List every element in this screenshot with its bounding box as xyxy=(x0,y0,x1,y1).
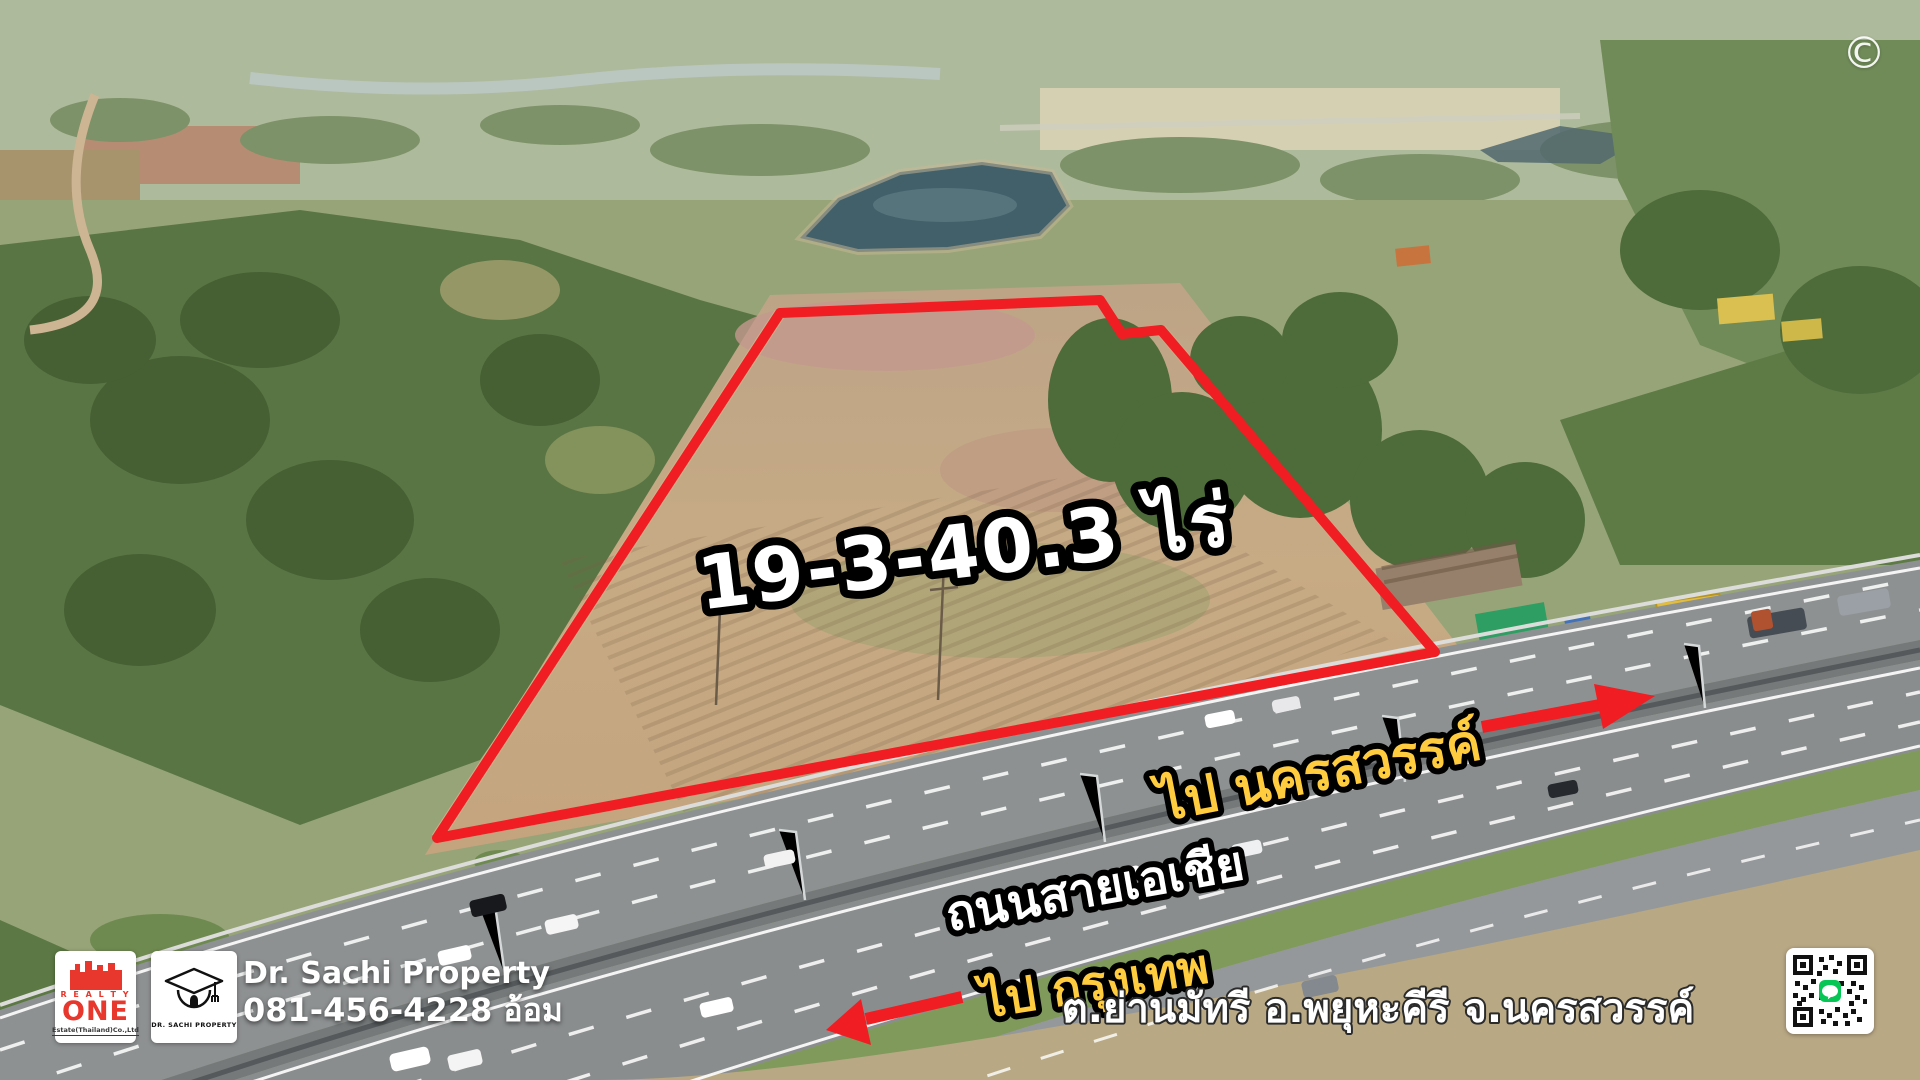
location-label: ต.ย่านมัทรี อ.พยุหะคีรี จ.นครสวรรค์ xyxy=(1062,986,1694,1034)
city-skyline-icon xyxy=(68,958,124,990)
dr-sachi-logo-label: DR. SACHI PROPERTY xyxy=(151,1021,236,1029)
graduation-cap-icon xyxy=(163,966,225,1018)
agent-phone: 081-456-4228 อ้อม xyxy=(243,992,563,1029)
copyright-icon: © xyxy=(1842,28,1886,79)
aerial-photo: 19-3-40.3 ไร่ ไป นครสวรรค์ ถนนสายเอเชีย … xyxy=(0,0,1920,1080)
qr-pattern xyxy=(1793,955,1867,1027)
scene-canvas: 19-3-40.3 ไร่ ไป นครสวรรค์ ถนนสายเอเชีย … xyxy=(0,0,1920,1080)
dr-sachi-logo: DR. SACHI PROPERTY xyxy=(151,951,237,1043)
realty-subtitle: Estate(Thailand)Co.,Ltd xyxy=(52,1026,139,1036)
agent-contact: Dr. Sachi Property 081-456-4228 อ้อม xyxy=(243,957,563,1028)
line-qr-code xyxy=(1786,948,1874,1034)
realty-one-logo: R E A L T Y ONE Estate(Thailand)Co.,Ltd xyxy=(55,951,136,1043)
agent-name: Dr. Sachi Property xyxy=(243,957,563,992)
branding-bar: R E A L T Y ONE Estate(Thailand)Co.,Ltd … xyxy=(55,951,237,1043)
line-app-icon xyxy=(1819,980,1841,1002)
one-word: ONE xyxy=(62,999,129,1025)
